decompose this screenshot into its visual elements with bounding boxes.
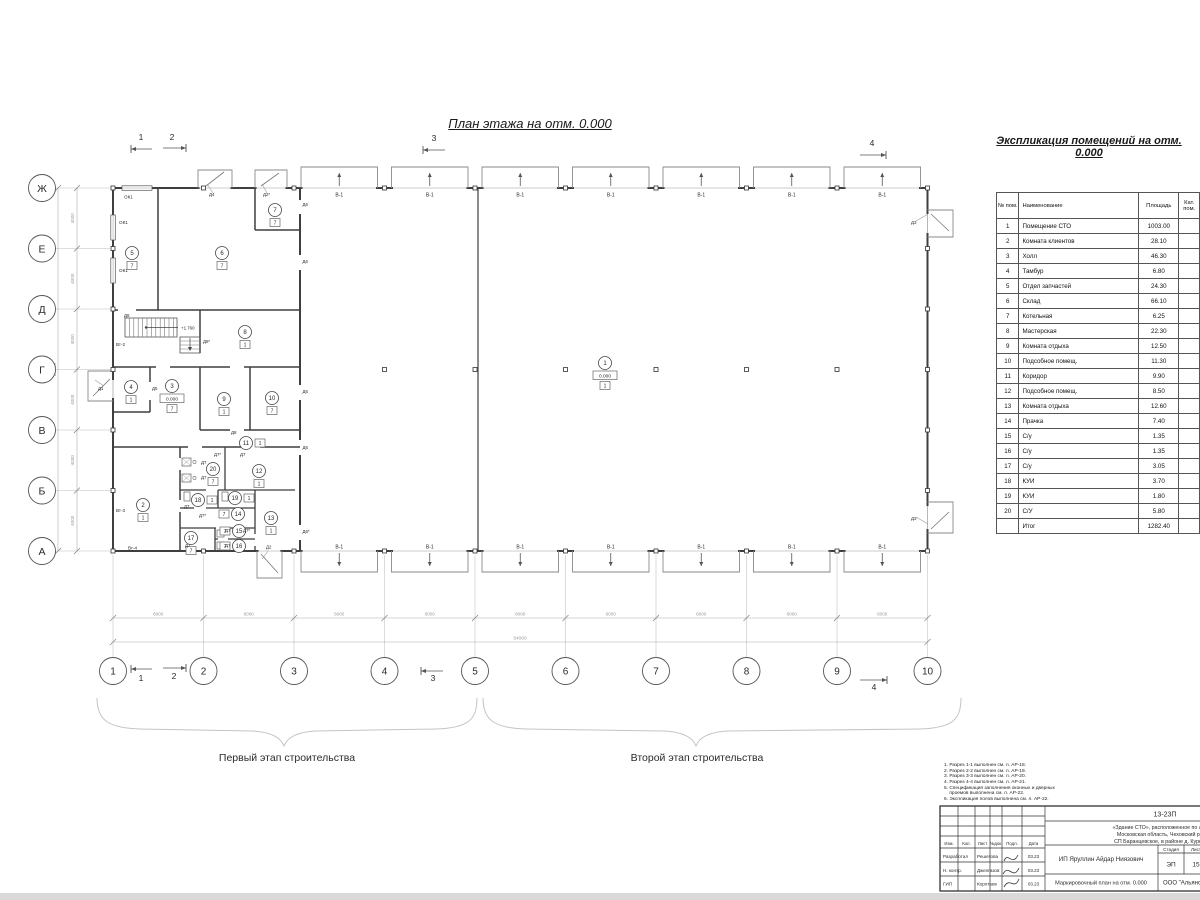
floor-type-value: 7: [131, 264, 134, 270]
room-number: 12: [256, 469, 263, 475]
room-schedule-table: № пом.НаименованиеПлощадьКат. пом. 1Поме…: [996, 192, 1200, 534]
sheet-title: Маркировочный план на отм. 0.000: [1055, 880, 1147, 887]
room-number: 15: [236, 529, 243, 535]
table-cell: С/у: [1019, 444, 1139, 459]
column: [383, 549, 387, 553]
section-number: 3: [431, 673, 436, 683]
gate-label: В-1: [878, 545, 886, 551]
gate-arrow-head: [790, 562, 794, 566]
column: [473, 186, 477, 190]
gate-arrow-head: [880, 173, 884, 177]
project-address: Московская область, Чеховский район,: [1117, 831, 1200, 838]
table-cell: [1179, 444, 1200, 459]
door-leaf: [931, 512, 949, 529]
room-number: 19: [232, 496, 239, 502]
dim-total-width: 54000: [513, 636, 527, 642]
column: [654, 549, 658, 553]
section-arrow: [131, 667, 136, 671]
room-number: 16: [236, 544, 243, 550]
gate-label: В-1: [788, 545, 796, 551]
floor-type-value: 1: [142, 516, 145, 522]
floor-type-value: 7: [271, 409, 274, 415]
table-cell: [1179, 294, 1200, 309]
grid-col-label: 5: [472, 667, 478, 678]
table-cell: С/у: [1019, 459, 1139, 474]
door-label: Д6: [303, 445, 309, 450]
column: [111, 247, 115, 251]
room-number: 20: [210, 467, 217, 473]
table-cell: Отдел запчастей: [1019, 279, 1139, 294]
door-label: Д7*: [243, 528, 250, 533]
table-cell: 1.35: [1139, 429, 1179, 444]
grid-col-label: 3: [291, 667, 297, 678]
faucet-icon: [193, 460, 196, 463]
table-cell: [1179, 354, 1200, 369]
wc-fixture: [222, 492, 228, 501]
stage-brace: [97, 698, 477, 746]
table-cell: [1179, 234, 1200, 249]
door-label: Д8: [231, 430, 237, 435]
gate-label: В-1: [335, 193, 343, 199]
table-cell: 9.90: [1139, 369, 1179, 384]
door-label: Д6: [303, 259, 309, 264]
table-cell: [1179, 249, 1200, 264]
column: [835, 549, 839, 553]
titleblock-col-header: Подл.: [1006, 841, 1018, 846]
grid-col-label: 6: [563, 667, 569, 678]
table-cell: 11: [997, 369, 1019, 384]
project-address: «Здание СТО», расположенное по адресу:: [1112, 825, 1200, 831]
table-cell: 16: [997, 444, 1019, 459]
table-cell: 24.30: [1139, 279, 1179, 294]
grid-row-label: Д: [38, 304, 45, 316]
table-row: 14Прачка7.40: [997, 414, 1200, 429]
door-label: Д7*: [214, 452, 221, 457]
table-row: 1Помещение СТО1003.00: [997, 219, 1200, 234]
floor-type-value: 1: [211, 498, 214, 504]
column: [111, 549, 115, 553]
client-name: ИП Яруллин Айдар Ниязович: [1059, 856, 1143, 863]
gate-label: В-1: [607, 193, 615, 199]
table-row: 20С/У5.80: [997, 504, 1200, 519]
table-cell: [1179, 414, 1200, 429]
dim-value: 6000: [334, 612, 345, 617]
room-number: 17: [188, 536, 195, 542]
table-cell: 6: [997, 294, 1019, 309]
door-label: Д3: [911, 516, 917, 521]
column: [292, 186, 296, 190]
sign-name: Джелгазов: [977, 868, 1000, 873]
elevation-value: 0.000: [166, 397, 178, 403]
column: [654, 186, 658, 190]
door-label: Д6: [303, 202, 309, 207]
schedule-col-header: № пом.: [997, 193, 1019, 219]
door-label: Д8: [124, 313, 130, 318]
table-row: 19КУИ1.80: [997, 489, 1200, 504]
gate-arrow-head: [699, 173, 703, 177]
floor-type-value: 1: [248, 496, 251, 502]
table-cell: 14: [997, 414, 1019, 429]
table-cell: [1179, 309, 1200, 324]
table-cell: 22.30: [1139, 324, 1179, 339]
plan-title: План этажа на отм. 0.000: [420, 116, 640, 131]
column: [926, 368, 930, 372]
dim-value: 6000: [153, 612, 164, 617]
wall-item-label: Вт-4: [128, 546, 138, 551]
floor-type-value: 7: [212, 480, 215, 486]
floor-type-value: 1: [259, 441, 262, 447]
room-number: 11: [243, 441, 250, 447]
table-cell: 7: [997, 309, 1019, 324]
table-cell: Склад: [1019, 294, 1139, 309]
table-row: 10Подсобное помещ.11.30: [997, 354, 1200, 369]
sheet-col-label: Лист: [1191, 847, 1200, 852]
room-number: 14: [235, 512, 242, 518]
table-row: 2Комната клиентов28.10: [997, 234, 1200, 249]
table-cell: 7.40: [1139, 414, 1179, 429]
column: [111, 307, 115, 311]
floor-type-value: 1: [244, 343, 247, 349]
door-label: Д5: [152, 386, 158, 391]
table-cell: С/У: [1019, 504, 1139, 519]
grid-row-label: Г: [39, 365, 45, 377]
room-number: 13: [268, 516, 275, 522]
table-cell: [1179, 504, 1200, 519]
floor-type-value: 7: [190, 549, 193, 555]
grid-col-label: 4: [382, 667, 388, 678]
table-cell: 46.30: [1139, 249, 1179, 264]
door-label: Д1: [98, 386, 104, 391]
project-address: СП Баранцевское, в районе д. Курниково: [1114, 838, 1200, 845]
schedule-col-header: Площадь: [1139, 193, 1179, 219]
table-cell: Подсобное помещ.: [1019, 384, 1139, 399]
table-cell: Коридор: [1019, 369, 1139, 384]
grid-col-label: 9: [834, 667, 840, 678]
table-row: 12Подсобное помещ.8.50: [997, 384, 1200, 399]
column: [926, 428, 930, 432]
room-number: 10: [269, 396, 276, 402]
floor-type-value: 1: [604, 384, 607, 390]
floor-type-value: 1: [223, 410, 226, 416]
grid-row-label: В: [38, 425, 45, 437]
table-cell: [1179, 369, 1200, 384]
table-cell: Прачка: [1019, 414, 1139, 429]
table-cell: 8: [997, 324, 1019, 339]
dim-value: 4000: [70, 394, 75, 405]
column: [473, 368, 477, 372]
door-leaf: [206, 172, 224, 186]
sign-date: 03.23: [1028, 882, 1040, 887]
dim-value: 6000: [244, 612, 255, 617]
gate-label: В-1: [878, 193, 886, 199]
table-cell: [1179, 519, 1200, 534]
door-leaf: [261, 173, 279, 186]
gate-arrow-head: [609, 173, 613, 177]
section-number: 3: [432, 133, 437, 143]
section-arrow: [421, 669, 426, 673]
table-row: 18КУИ3.70: [997, 474, 1200, 489]
table-cell: 12.60: [1139, 399, 1179, 414]
company-name: ООО "Альянс": [1163, 881, 1200, 887]
table-row: 11Коридор9.90: [997, 369, 1200, 384]
table-cell: 1282.40: [1139, 519, 1179, 534]
column: [473, 549, 477, 553]
bottom-bar: [0, 893, 1200, 900]
table-cell: [1179, 474, 1200, 489]
wall-item-label: ОК1: [119, 268, 128, 273]
table-cell: [1179, 399, 1200, 414]
table-cell: 3.70: [1139, 474, 1179, 489]
section-arrow: [181, 146, 186, 150]
table-cell: [1179, 489, 1200, 504]
wall-item-label: ОК1: [124, 195, 133, 200]
floor-type-value: 7: [223, 512, 226, 518]
table-row: Итог1282.40: [997, 519, 1200, 534]
section-number: 2: [172, 671, 177, 681]
table-cell: 3.05: [1139, 459, 1179, 474]
floor-type-value: 1: [258, 482, 261, 488]
drawing-canvas: 6000600060006000600060006000600060005400…: [0, 0, 1200, 900]
gate-arrow-head: [428, 173, 432, 177]
door-label: Д7: [240, 452, 246, 457]
table-cell: Комната клиентов: [1019, 234, 1139, 249]
table-cell: 2: [997, 234, 1019, 249]
sign-date: 03.23: [1028, 868, 1040, 873]
gate-arrow-head: [428, 562, 432, 566]
table-cell: [1179, 279, 1200, 294]
table-cell: Помещение СТО: [1019, 219, 1139, 234]
door-label: Д7: [201, 475, 207, 480]
column: [383, 368, 387, 372]
table-cell: Холл: [1019, 249, 1139, 264]
sheet-value: 15: [1192, 862, 1200, 869]
table-row: 17С/у3.05: [997, 459, 1200, 474]
table-cell: 3: [997, 249, 1019, 264]
section-number: 1: [139, 673, 144, 683]
titleblock-col-header: Кол.: [962, 841, 971, 846]
grid-row-label: А: [38, 546, 45, 558]
faucet-icon: [193, 476, 196, 479]
section-arrow: [181, 666, 186, 670]
door-label: Д8*: [203, 339, 210, 344]
table-cell: 66.10: [1139, 294, 1179, 309]
section-arrow: [882, 678, 887, 682]
column: [564, 368, 568, 372]
column: [926, 307, 930, 311]
dim-value: 6000: [606, 612, 617, 617]
table-cell: КУИ: [1019, 489, 1139, 504]
table-cell: 1.35: [1139, 444, 1179, 459]
table-row: 15С/у1.35: [997, 429, 1200, 444]
gate-arrow-head: [337, 562, 341, 566]
table-cell: 13: [997, 399, 1019, 414]
door-label: Д6: [303, 389, 309, 394]
stage-value: ЭП: [1166, 862, 1176, 869]
column: [111, 186, 115, 190]
door-label: Д7: [185, 543, 191, 548]
table-cell: Мастерская: [1019, 324, 1139, 339]
table-cell: КУИ: [1019, 474, 1139, 489]
table-cell: 6.25: [1139, 309, 1179, 324]
titleblock-col-header: Лист: [978, 841, 987, 846]
gate-label: В-1: [788, 193, 796, 199]
floor-type-value: 1: [270, 529, 273, 535]
titleblock: [940, 806, 1200, 891]
stage-col-label: Стадия: [1163, 847, 1179, 852]
wc-fixture: [184, 492, 190, 501]
schedule-col-header: Наименование: [1019, 193, 1139, 219]
titleblock-col-header: Изм.: [944, 841, 953, 846]
column: [111, 489, 115, 493]
table-cell: 12.50: [1139, 339, 1179, 354]
grid-col-label: 7: [653, 667, 659, 678]
table-cell: Комната отдыха: [1019, 339, 1139, 354]
gate-label: В-1: [516, 193, 524, 199]
table-cell: 15: [997, 429, 1019, 444]
gate-arrow-head: [609, 562, 613, 566]
schedule-body: 1Помещение СТО1003.002Комната клиентов28…: [997, 219, 1200, 534]
project-code: 13-23П: [1154, 812, 1177, 819]
notes: 1. Разрез 1-1 выполнен см. л. АР-18.2. Р…: [944, 763, 1055, 803]
sign-name: Решетова: [977, 854, 999, 859]
table-cell: Комната отдыха: [1019, 399, 1139, 414]
column: [835, 368, 839, 372]
column: [654, 368, 658, 372]
table-cell: 10: [997, 354, 1019, 369]
note-line: 6. Экспликация полов выполнена см. л. АР…: [944, 797, 1055, 803]
table-row: 8Мастерская22.30: [997, 324, 1200, 339]
column: [926, 247, 930, 251]
gate-arrow-head: [518, 173, 522, 177]
grid-col-label: 2: [201, 667, 207, 678]
gate-label: В-1: [697, 545, 705, 551]
door-label: Д2: [266, 545, 272, 550]
grid-row-label: Ж: [37, 183, 47, 195]
dim-value: 6000: [696, 612, 707, 617]
grid-col-label: 10: [922, 667, 934, 678]
titleblock-col-header: №док.: [990, 841, 1003, 846]
table-row: 13Комната отдыха12.60: [997, 399, 1200, 414]
gate-label: В-1: [607, 545, 615, 551]
dim-value: 6000: [787, 612, 798, 617]
door-label: Д4: [209, 192, 215, 197]
table-row: 16С/у1.35: [997, 444, 1200, 459]
table-row: 3Холл46.30: [997, 249, 1200, 264]
column: [745, 368, 749, 372]
table-cell: 8.50: [1139, 384, 1179, 399]
table-cell: [997, 519, 1019, 534]
gate-label: В-1: [697, 193, 705, 199]
section-number: 4: [870, 138, 875, 148]
gate-arrow-head: [337, 173, 341, 177]
column: [202, 186, 206, 190]
gate-label: В-1: [516, 545, 524, 551]
grid-row-label: Б: [39, 486, 46, 498]
table-cell: 6.80: [1139, 264, 1179, 279]
table-cell: 28.10: [1139, 234, 1179, 249]
table-cell: 5: [997, 279, 1019, 294]
grid-col-label: 1: [110, 667, 116, 678]
dim-value: 4000: [70, 273, 75, 284]
section-arrow: [423, 148, 428, 152]
section-arrow: [881, 153, 886, 157]
sign-name: Коротаев: [977, 882, 997, 887]
floor-type-value: 1: [130, 398, 133, 404]
sign-role: Н. контр.: [943, 868, 962, 873]
table-row: 9Комната отдыха12.50: [997, 339, 1200, 354]
table-cell: Подсобное помещ.: [1019, 354, 1139, 369]
floor-type-value: 7: [171, 407, 174, 413]
door-leaf: [931, 214, 949, 231]
floor-type-value: 7: [274, 221, 277, 227]
table-cell: 11.30: [1139, 354, 1179, 369]
door-label: Д7: [225, 528, 231, 533]
table-cell: 17: [997, 459, 1019, 474]
table-cell: [1179, 339, 1200, 354]
stage-brace: [483, 698, 961, 746]
table-row: 7Котельная6.25: [997, 309, 1200, 324]
column: [564, 186, 568, 190]
table-cell: [1179, 219, 1200, 234]
gate-arrow-head: [518, 562, 522, 566]
table-cell: 1: [997, 219, 1019, 234]
table-cell: 18: [997, 474, 1019, 489]
dim-value: 6000: [877, 612, 888, 617]
table-cell: [1179, 324, 1200, 339]
stage-label-second: Второй этап строительства: [631, 752, 764, 764]
sign-date: 03.23: [1028, 854, 1040, 859]
dim-value: 4000: [70, 334, 75, 345]
column: [111, 368, 115, 372]
gate-arrow-head: [880, 562, 884, 566]
column: [564, 549, 568, 553]
table-cell: 4: [997, 264, 1019, 279]
dim-value: 6000: [425, 612, 436, 617]
dim-value: 6000: [515, 612, 526, 617]
room-number: 18: [195, 498, 202, 504]
section-number: 2: [170, 132, 175, 142]
column: [383, 186, 387, 190]
stage-label-first: Первый этап строительства: [219, 752, 355, 764]
gate-arrow-head: [699, 562, 703, 566]
wall-item-label: ОК1: [119, 220, 128, 225]
column: [745, 549, 749, 553]
column: [202, 549, 206, 553]
door-label: Д6*: [303, 529, 310, 534]
column: [292, 549, 296, 553]
floor-type-value: 7: [221, 264, 224, 270]
dim-value: 4000: [70, 455, 75, 466]
grid-row-label: Е: [38, 244, 45, 256]
column: [926, 489, 930, 493]
table-cell: Котельная: [1019, 309, 1139, 324]
wall-item-label: Вт-2: [116, 342, 126, 347]
schedule-col-header: Кат. пом.: [1179, 193, 1200, 219]
table-cell: Тамбур: [1019, 264, 1139, 279]
table-cell: [1179, 459, 1200, 474]
door-label: Д7*: [199, 513, 206, 518]
column: [745, 186, 749, 190]
table-cell: [1179, 264, 1200, 279]
column: [111, 428, 115, 432]
section-number: 4: [872, 682, 877, 692]
door-label: Д7: [201, 460, 207, 465]
table-cell: С/у: [1019, 429, 1139, 444]
gate-label: В-1: [335, 545, 343, 551]
gate-label: В-1: [426, 545, 434, 551]
dim-value: 4000: [70, 515, 75, 526]
table-cell: [1179, 384, 1200, 399]
